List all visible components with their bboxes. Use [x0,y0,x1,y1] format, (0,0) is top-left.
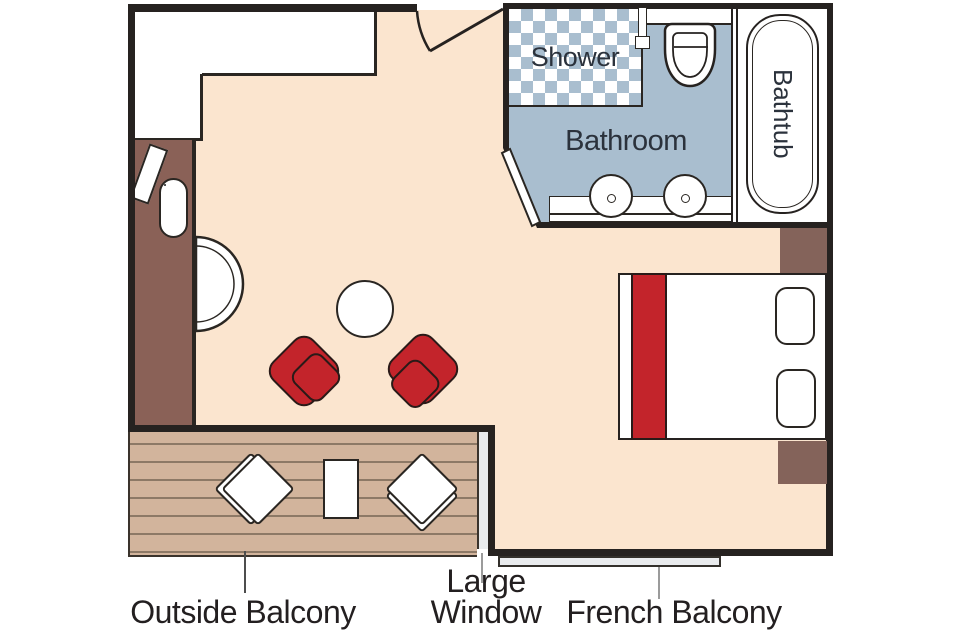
outside-balcony-leader [244,551,246,593]
nightstand-bottom [778,441,827,484]
bed-runner [631,273,667,440]
pillow [775,287,815,345]
shower-partition-end [635,36,650,49]
closet-recess-lower [134,74,202,140]
closet-edge-line [200,74,203,141]
vanity-counter-edge [549,213,733,215]
wall-top [128,4,417,12]
wall-left [128,4,135,432]
wardrobe-edge-line [192,138,196,427]
wall-window-pier [488,425,495,556]
outside-balcony-label: Outside Balcony [130,597,356,628]
bathroom-area: Shower Bathroom Bathtub [503,3,833,228]
large-window-label-line2: Window [431,597,542,628]
shower-label: Shower [531,42,620,73]
bathtub-label: Bathtub [767,69,798,159]
bathroom-label: Bathroom [565,125,687,158]
floor-plan: Shower Bathroom Bathtub [0,0,960,640]
sink-drain-right [681,194,690,203]
closet-edge-line [202,73,377,76]
wall-balcony [128,425,495,432]
bathtub: Bathtub [746,14,819,214]
bathtub-partition-wall [731,9,738,222]
closet-edge-line [374,12,377,76]
large-window-label: Large Window [431,566,542,628]
balcony-table [323,459,359,519]
wall-bottom [488,549,833,556]
toilet-alcove [645,9,733,25]
bathroom-label-wrap: Bathroom [519,125,733,157]
nightstand-top [780,228,827,273]
round-table [336,280,394,338]
large-window [477,427,488,549]
large-window-label-line1: Large [431,566,542,597]
luggage-rack [159,178,188,238]
luggage-rack-grid [164,184,183,232]
shower-area: Shower [509,9,643,107]
french-balcony-label: French Balcony [566,597,781,628]
sink-drain-left [607,194,616,203]
closet-recess [134,12,375,74]
pillow [776,369,816,428]
